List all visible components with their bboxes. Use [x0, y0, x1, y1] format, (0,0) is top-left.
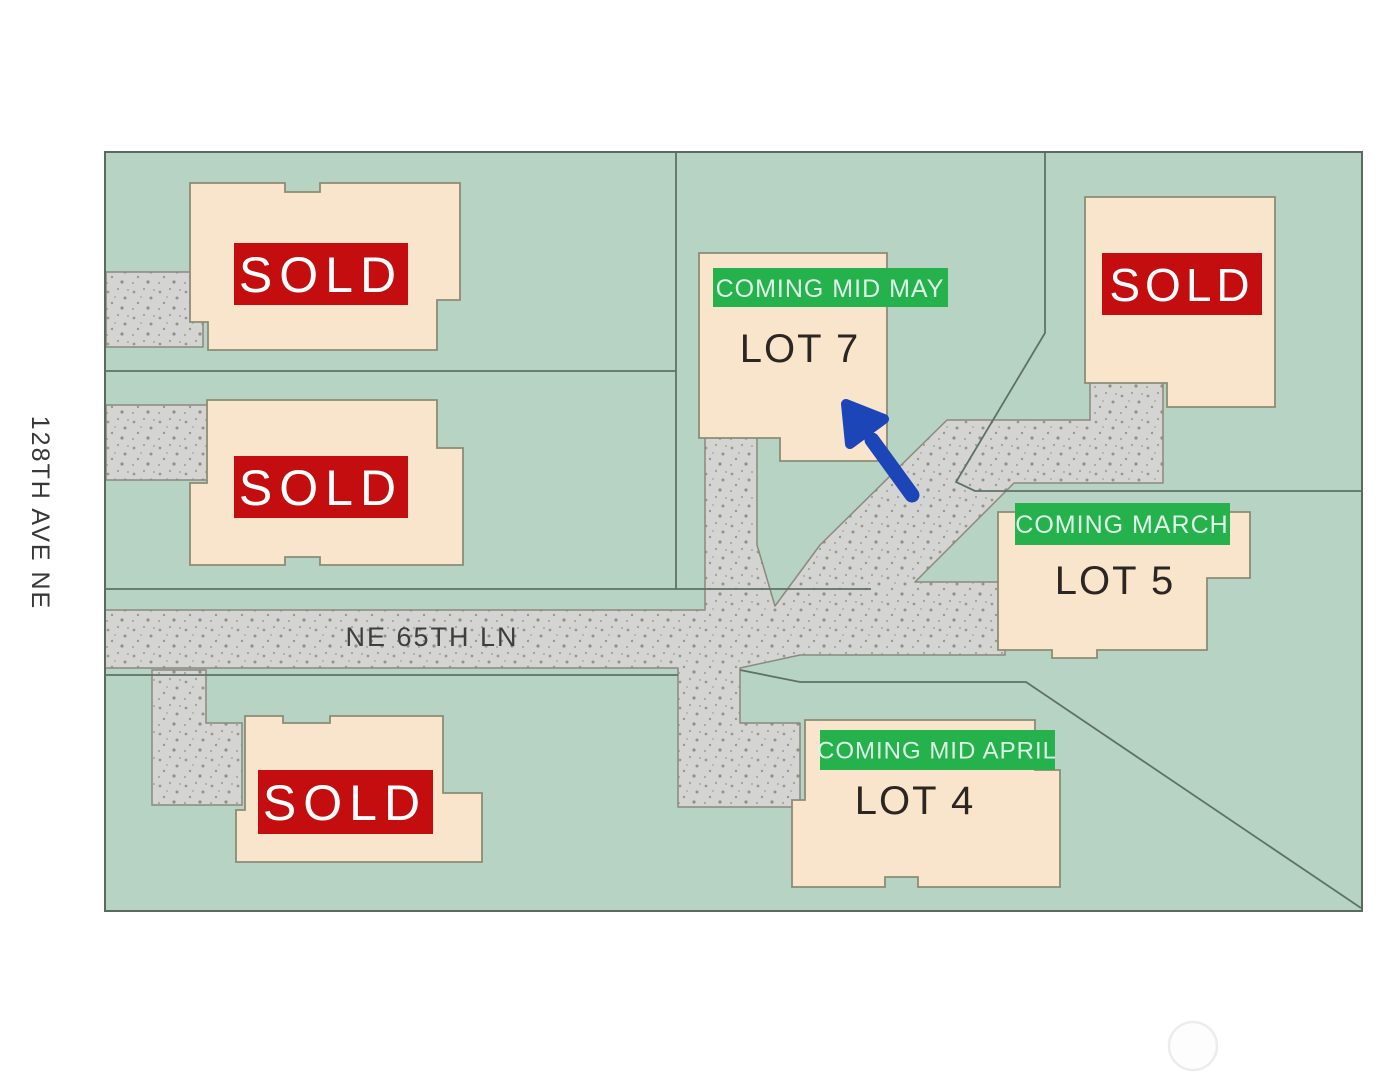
- driveway-mid-left: [106, 405, 210, 480]
- plat-map-page: SOLD SOLD SOLD SOLD COMING MID MAY LOT 7…: [0, 0, 1400, 1081]
- lot-4-label: LOT 4: [855, 779, 975, 823]
- coming-mid-may-label: COMING MID MAY: [716, 275, 945, 303]
- lot-5-label: LOT 5: [1055, 559, 1175, 603]
- watermark-circle: [1169, 1022, 1217, 1070]
- coming-mid-april-label: COMING MID APRIL: [817, 738, 1057, 765]
- driveway-top-left: [106, 272, 203, 347]
- sold-label-bottom-left: SOLD: [263, 775, 427, 831]
- sold-label-top-right: SOLD: [1109, 259, 1254, 311]
- site-plan-map: SOLD SOLD SOLD SOLD COMING MID MAY LOT 7…: [0, 0, 1400, 1081]
- 128th-ave-ne-label: 128TH AVE NE: [26, 416, 54, 610]
- ne-65th-ln-label: NE 65TH LN: [345, 622, 518, 652]
- sold-label-mid-left: SOLD: [239, 460, 403, 516]
- sold-label-top-left: SOLD: [239, 247, 403, 303]
- lot-7-label: LOT 7: [740, 327, 860, 371]
- coming-march-label: COMING MARCH: [1015, 511, 1228, 539]
